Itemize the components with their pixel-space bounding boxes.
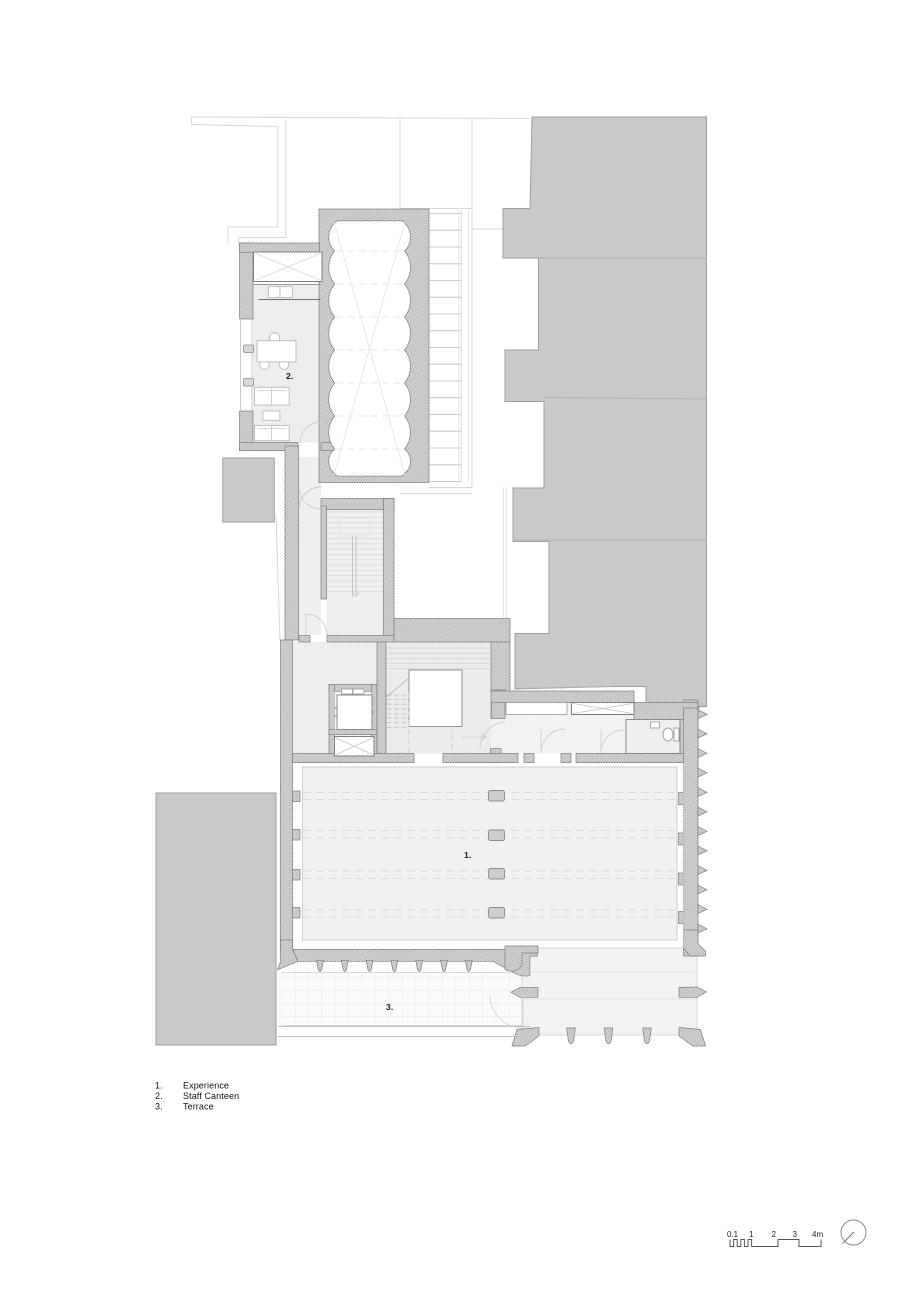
svg-text:2.: 2.	[155, 1091, 163, 1101]
svg-text:1.: 1.	[464, 850, 471, 860]
svg-text:1.: 1.	[155, 1081, 163, 1091]
svg-text:0.1: 0.1	[727, 1230, 739, 1239]
svg-text:Experience: Experience	[183, 1081, 229, 1091]
svg-text:2.: 2.	[286, 371, 293, 381]
svg-text:Terrace: Terrace	[183, 1102, 214, 1112]
svg-text:3: 3	[793, 1230, 798, 1239]
svg-text:2: 2	[772, 1230, 777, 1239]
svg-text:4m: 4m	[812, 1230, 823, 1239]
svg-text:3.: 3.	[386, 1002, 393, 1012]
svg-text:1: 1	[749, 1230, 754, 1239]
svg-text:3.: 3.	[155, 1102, 163, 1112]
svg-text:Staff Canteen: Staff Canteen	[183, 1091, 239, 1101]
